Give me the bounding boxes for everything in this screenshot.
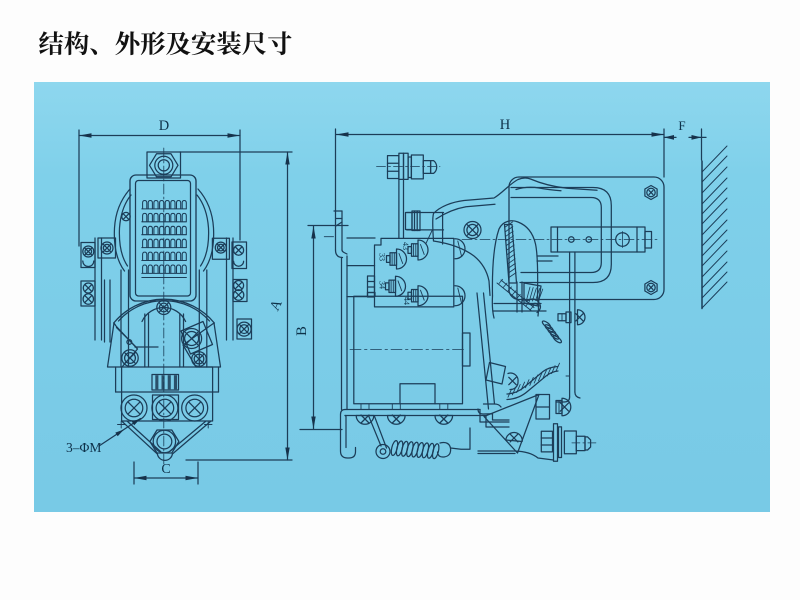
svg-text:3–ΦM: 3–ΦM xyxy=(66,440,101,455)
svg-text:C: C xyxy=(161,462,170,477)
svg-text:B: B xyxy=(294,326,310,336)
svg-text:34: 34 xyxy=(378,281,387,289)
svg-text:D: D xyxy=(159,118,169,134)
svg-text:33: 33 xyxy=(378,253,387,261)
svg-text:H: H xyxy=(500,117,511,133)
svg-text:44: 44 xyxy=(402,297,411,305)
svg-text:F: F xyxy=(678,118,685,133)
svg-text:43: 43 xyxy=(401,242,410,250)
